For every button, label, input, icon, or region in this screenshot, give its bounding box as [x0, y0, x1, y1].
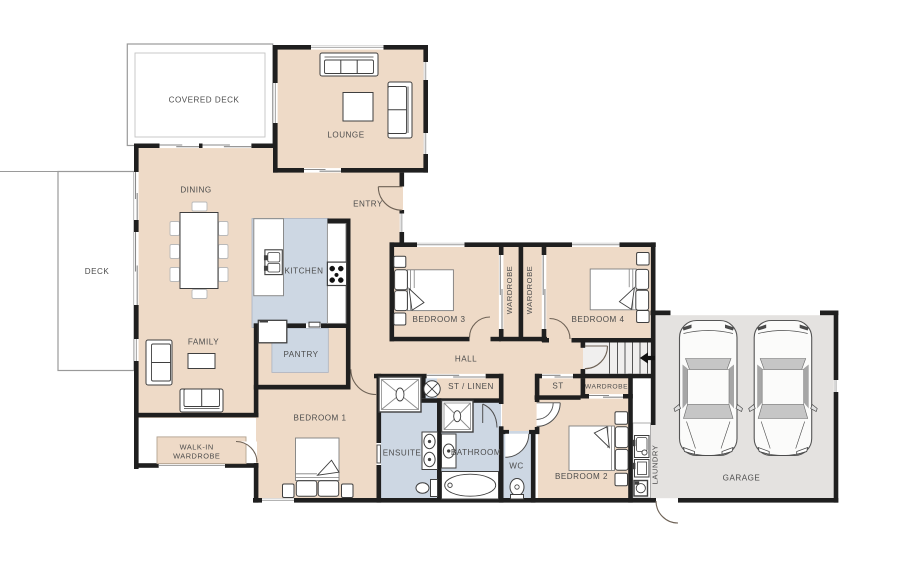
svg-text:BATHROOM: BATHROOM [451, 448, 501, 457]
svg-text:BEDROOM 4: BEDROOM 4 [571, 315, 624, 324]
svg-text:WALK-IN: WALK-IN [180, 443, 214, 452]
svg-text:HALL: HALL [455, 355, 477, 364]
svg-text:WC: WC [509, 462, 523, 471]
svg-text:WARDROBE: WARDROBE [585, 384, 628, 391]
svg-text:FAMILY: FAMILY [188, 338, 219, 347]
svg-text:BEDROOM 3: BEDROOM 3 [412, 315, 465, 324]
svg-text:WARDROBE: WARDROBE [173, 452, 220, 461]
svg-text:ST / LINEN: ST / LINEN [448, 382, 494, 391]
svg-text:PANTRY: PANTRY [283, 350, 318, 359]
svg-text:GARAGE: GARAGE [723, 474, 761, 483]
svg-text:DECK: DECK [85, 267, 110, 276]
svg-text:DINING: DINING [180, 186, 211, 195]
svg-text:KITCHEN: KITCHEN [284, 267, 323, 276]
svg-text:WARDROBE: WARDROBE [525, 266, 534, 314]
svg-text:LAUNDRY: LAUNDRY [651, 445, 660, 485]
svg-text:COVERED DECK: COVERED DECK [169, 96, 240, 105]
svg-text:WARDROBE: WARDROBE [505, 266, 514, 314]
svg-text:ENTRY: ENTRY [353, 200, 383, 209]
svg-text:LOUNGE: LOUNGE [327, 131, 364, 140]
svg-text:BEDROOM 1: BEDROOM 1 [293, 414, 346, 423]
svg-text:ST: ST [552, 382, 563, 391]
svg-text:ENSUITE: ENSUITE [383, 449, 422, 458]
svg-text:BEDROOM 2: BEDROOM 2 [555, 472, 608, 481]
